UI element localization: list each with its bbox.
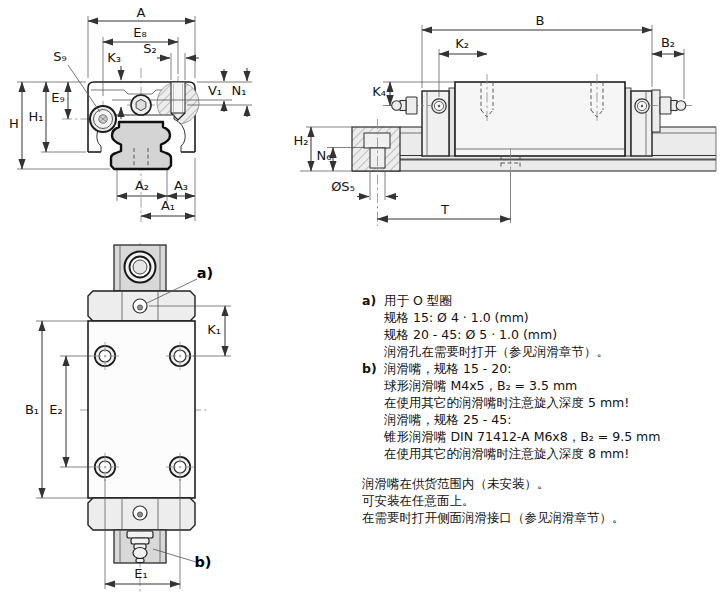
carriage-side xyxy=(422,82,660,156)
dim-label-h: H xyxy=(9,116,19,131)
end-cap-bottom xyxy=(88,498,195,530)
end-cap-screw-right xyxy=(635,99,649,113)
note-b-line: 在使用其它的润滑嘴时注意旋入深度 5 mm! xyxy=(384,394,718,411)
dim-label-v1: V₁ xyxy=(208,83,222,98)
dim-label-n6: N₆ xyxy=(317,148,332,163)
left-torx-screw xyxy=(90,106,116,132)
note-b-line: 锥形润滑嘴 DIN 71412-A M6x8，B₂ = 9.5 mm xyxy=(384,428,718,445)
note-footer: 润滑嘴在供货范围内（未安装）。 可安装在任意面上。 在需要时打开侧面润滑接口（参… xyxy=(362,475,718,526)
dim-label-a3: A₃ xyxy=(174,178,188,193)
dim-label-b2: B₂ xyxy=(661,35,675,50)
dim-label-t: T xyxy=(440,202,449,217)
dim-label-h1: H₁ xyxy=(29,109,44,124)
rail-top-segment xyxy=(114,245,166,291)
rail-cross-section xyxy=(111,122,171,169)
side-view: B K₂ B₂ K₄ H₂ N₆ ØS₅ T xyxy=(294,13,717,226)
rail-cross-piece xyxy=(352,119,400,226)
note-a-label: a) xyxy=(362,292,384,309)
dim-label-h2: H₂ xyxy=(294,133,309,148)
dim-label-e9: E₉ xyxy=(51,90,64,105)
front-dimensions: A E₈ S₂ S₉ K₃ V₁ N₁ H H₁ xyxy=(9,5,247,221)
dim-label-e2: E₂ xyxy=(49,402,62,417)
note-b: b) 润滑嘴，规格 15 - 20: 球形润滑嘴 M4x5，B₂ = 3.5 m… xyxy=(362,360,718,462)
note-b-line: 润滑嘴，规格 25 - 45: xyxy=(384,411,718,428)
drawing-page: A E₈ S₂ S₉ K₃ V₁ N₁ H H₁ xyxy=(0,0,720,598)
note-a-line: 规格 20 - 45: Ø 5 · 1.0 (mm) xyxy=(384,326,718,343)
dim-label-e8: E₈ xyxy=(133,25,146,40)
note-a: a) 用于 O 型圈 规格 15: Ø 4 · 1.0 (mm) 规格 20 -… xyxy=(362,292,718,360)
note-b-label: b) xyxy=(362,360,384,377)
front-section-view: A E₈ S₂ S₉ K₃ V₁ N₁ H H₁ xyxy=(9,5,252,222)
notes-panel: a) 用于 O 型圈 规格 15: Ø 4 · 1.0 (mm) 规格 20 -… xyxy=(362,292,718,526)
dim-label-k3: K₃ xyxy=(107,50,121,65)
center-hex-screw xyxy=(131,95,151,115)
dim-label-s2: S₂ xyxy=(143,41,156,56)
callout-a: a) xyxy=(197,265,213,281)
dim-label-k2: K₂ xyxy=(455,36,469,51)
note-b-line: 在使用其它的润滑嘴时注意旋入深度 8 mm! xyxy=(384,445,718,462)
dim-label-b: B xyxy=(536,13,545,28)
dim-label-a1: A₁ xyxy=(161,198,175,213)
end-cap-screw-left xyxy=(432,99,446,113)
dim-label-b1: B₁ xyxy=(25,402,39,417)
note-b-line: 球形润滑嘴 M4x5，B₂ = 3.5 mm xyxy=(384,377,718,394)
dim-label-a-front: A xyxy=(137,5,146,20)
dim-label-k4: K₄ xyxy=(372,84,386,99)
dim-label-s9: S₉ xyxy=(53,49,66,64)
note-a-line: 润滑孔在需要时打开（参见润滑章节）。 xyxy=(384,343,718,360)
dim-label-e1: E₁ xyxy=(134,566,147,581)
dim-label-s5: ØS₅ xyxy=(331,179,355,194)
note-b-line: 润滑嘴，规格 15 - 20: xyxy=(384,360,718,377)
note-a-line: 规格 15: Ø 4 · 1.0 (mm) xyxy=(384,309,718,326)
note-footer-line: 在需要时打开侧面润滑接口（参见润滑章节）。 xyxy=(362,509,718,526)
dim-label-k1: K₁ xyxy=(207,322,221,337)
note-footer-line: 润滑嘴在供货范围内（未安装）。 xyxy=(362,475,718,492)
top-view: B₁ E₂ K₁ E₁ a) b) xyxy=(25,243,231,592)
dim-label-a2: A₂ xyxy=(135,178,149,193)
note-footer-line: 可安装在任意面上。 xyxy=(362,492,718,509)
callout-b: b) xyxy=(194,554,211,570)
dim-label-n1: N₁ xyxy=(232,83,247,98)
note-a-line: 用于 O 型圈 xyxy=(384,292,718,309)
